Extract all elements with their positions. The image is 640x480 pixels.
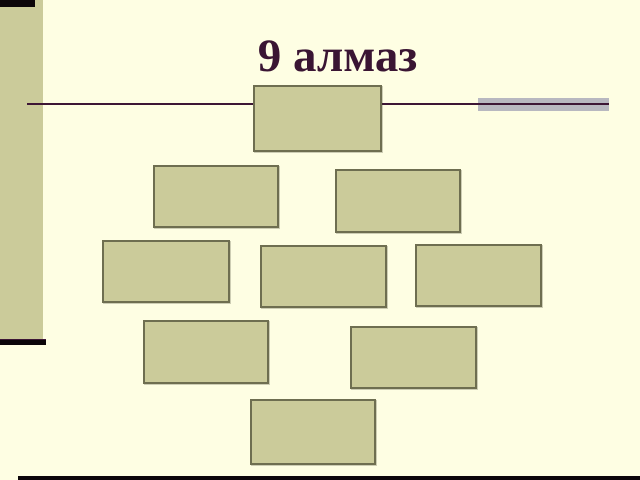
slide-canvas: 9 алмаз xyxy=(0,0,640,480)
slide-title: 9 алмаз xyxy=(35,33,640,80)
diamond-box-1 xyxy=(253,85,382,152)
diamond-box-6 xyxy=(415,244,542,307)
left-band-end-bar xyxy=(0,339,46,345)
diamond-box-4 xyxy=(102,240,230,303)
bottom-accent-line xyxy=(18,476,640,480)
diamond-box-5 xyxy=(260,245,387,308)
diamond-box-3 xyxy=(335,169,461,233)
diamond-box-8 xyxy=(350,326,477,389)
diamond-box-2 xyxy=(153,165,279,228)
diamond-box-9 xyxy=(250,399,376,465)
top-left-accent-bar xyxy=(0,0,35,7)
diamond-box-7 xyxy=(143,320,269,384)
